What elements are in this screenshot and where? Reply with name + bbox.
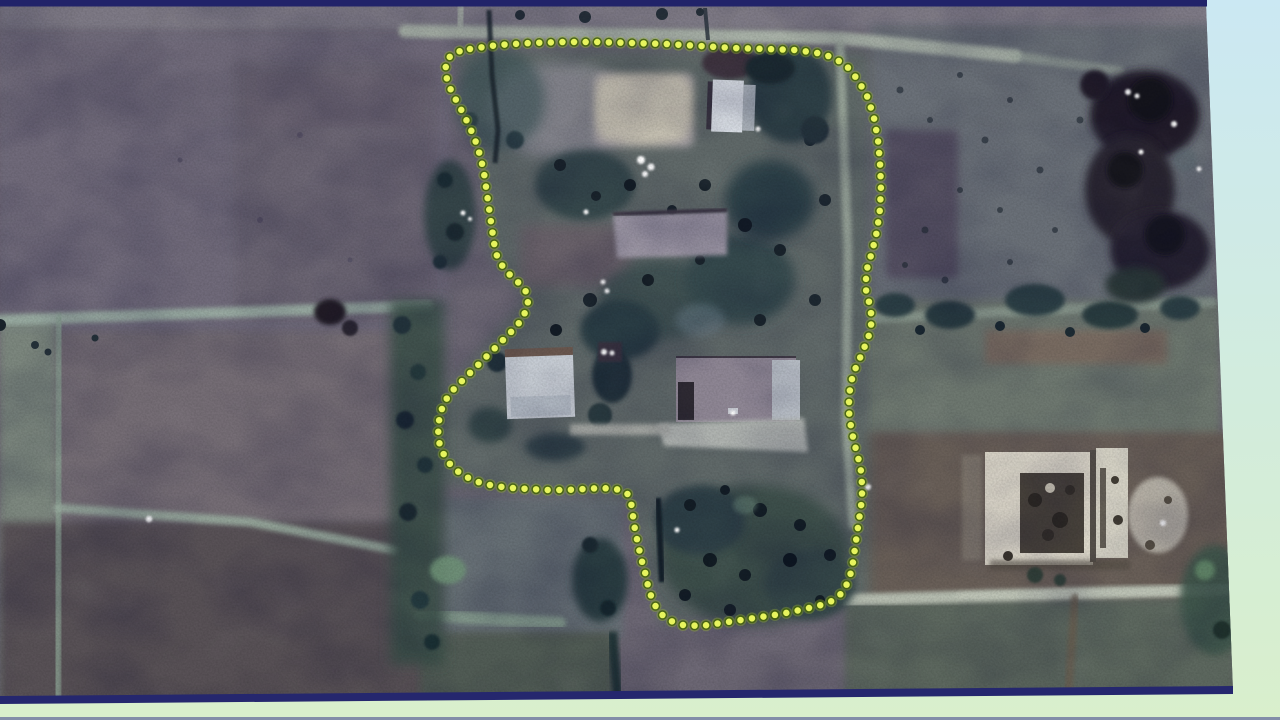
satellite-slide-canvas	[0, 0, 1280, 720]
top-border-strip	[0, 0, 1207, 7]
satellite-photo	[0, 0, 1250, 710]
slide	[0, 0, 1280, 720]
film-grain-overlay	[0, 0, 1240, 710]
